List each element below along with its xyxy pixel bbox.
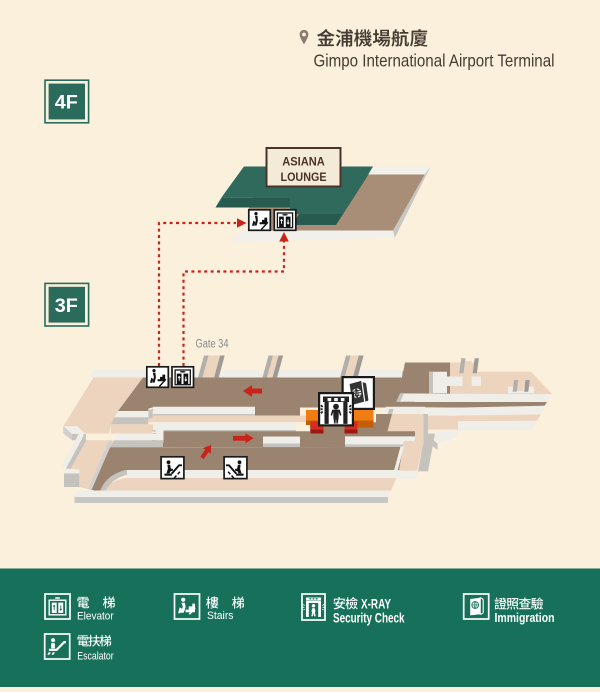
svg-text:Escalator: Escalator xyxy=(77,650,114,662)
svg-text:Elevator: Elevator xyxy=(77,610,114,622)
svg-text:4F: 4F xyxy=(55,92,78,114)
svg-text:Gimpo International Airport Te: Gimpo International Airport Terminal xyxy=(314,50,555,70)
svg-text:3F: 3F xyxy=(55,295,78,317)
svg-text:LOUNGE: LOUNGE xyxy=(281,170,327,184)
svg-text:Security Check: Security Check xyxy=(333,610,405,626)
svg-text:Immigration: Immigration xyxy=(495,610,555,625)
svg-text:ASIANA: ASIANA xyxy=(282,155,325,169)
svg-text:Gate 34: Gate 34 xyxy=(196,339,229,351)
svg-text:Stairs: Stairs xyxy=(207,610,234,622)
